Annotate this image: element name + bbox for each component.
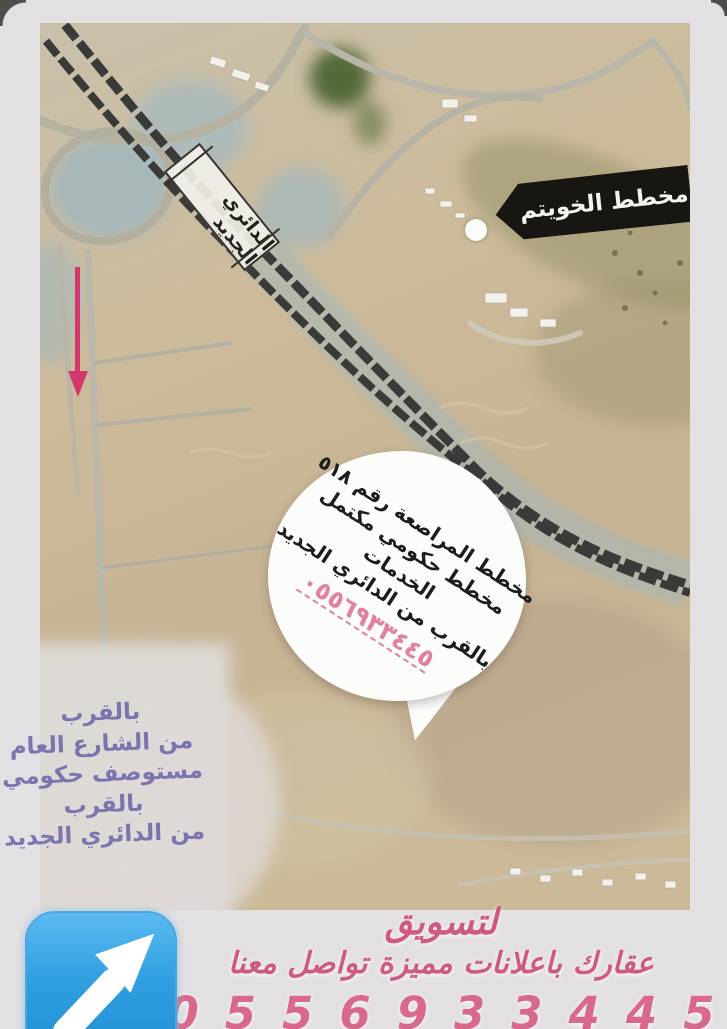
location-dot-marker xyxy=(465,219,487,241)
footer-marketing-text: لتسويق عقارك باعلانات مميزة تواصل معنا 0… xyxy=(160,903,722,1029)
arrow-head xyxy=(68,371,88,397)
screen-corner-top-right xyxy=(711,0,727,16)
footer-line2: عقارك باعلانات مميزة تواصل معنا xyxy=(160,947,722,982)
real-estate-ad-poster: مخطط الخويتم الدائري الجديد مخطط المراصع… xyxy=(0,0,727,1029)
footer-line1: لتسويق xyxy=(160,903,722,943)
down-arrow-annotation xyxy=(67,267,93,399)
side-note: بالقرب من الشارع العام مستوصف حكومي بالق… xyxy=(0,694,208,854)
arrow-shaft xyxy=(75,267,80,373)
area-name-label: مخطط الخويتم xyxy=(518,181,689,225)
footer-phone-number: 0556933445 xyxy=(160,987,727,1029)
up-right-arrow-icon xyxy=(25,911,177,1029)
screen-corner-top-left xyxy=(0,0,26,26)
speech-bubble-annotation: مخطط المراصعة رقم ٥١٨ مخطط حكومي مكتمل ا… xyxy=(268,451,526,701)
